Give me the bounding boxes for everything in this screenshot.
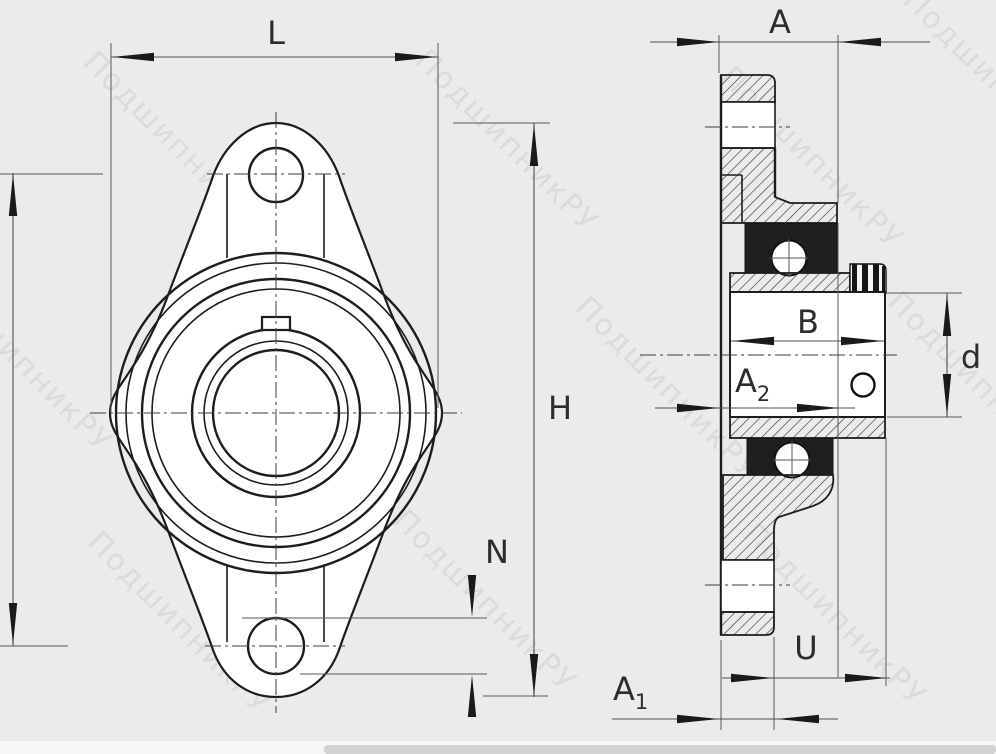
dim-label-d: d [961, 338, 981, 376]
flange-bolt-hole-bottom [721, 560, 774, 612]
flange-section-top [721, 75, 775, 102]
footer-strip [0, 741, 996, 754]
bearing-unit-technical-drawing: ПодшипникРУ ПодшипникРУ ПодшипникРУ Подш… [0, 0, 996, 754]
dim-label-A: A [769, 3, 791, 41]
set-screw-hole [852, 374, 875, 397]
dim-label-A1: A1 [613, 670, 648, 714]
dim-label-U: U [794, 629, 817, 667]
dim-label-L: L [267, 14, 285, 52]
dim-label-B: B [797, 303, 819, 341]
set-screw [850, 264, 886, 293]
flange-bolt-hole-top [721, 102, 775, 148]
inner-ring-top-section [730, 273, 850, 292]
horizontal-scrollbar[interactable] [324, 745, 996, 754]
watermark-text: ПодшипникРУ [0, 263, 119, 460]
dim-label-H: H [548, 389, 572, 427]
flange-section-bottom [721, 612, 774, 635]
watermark-text: ПодшипникРУ [896, 0, 996, 180]
drawing-canvas: ПодшипникРУ ПодшипникРУ ПодшипникРУ Подш… [0, 0, 996, 754]
watermark-text: ПодшипникРУ [880, 285, 996, 482]
section-view [640, 75, 897, 635]
dim-label-N: N [485, 533, 509, 571]
inner-ring-bottom-section [730, 417, 885, 438]
